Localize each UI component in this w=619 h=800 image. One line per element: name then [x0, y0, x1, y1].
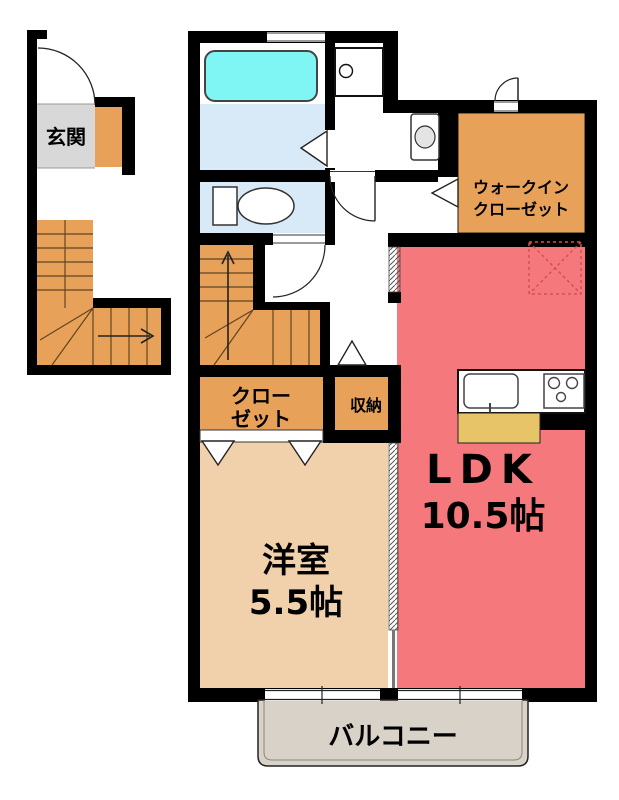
kitchen-sink [464, 374, 518, 408]
western-room-size-label: 5.5帖 [249, 583, 343, 623]
washing-machine [335, 48, 383, 96]
wall-segment [27, 30, 37, 375]
ldk-size-label: 10.5帖 [421, 496, 546, 537]
balcony-label: バルコニー [328, 722, 457, 752]
wall-segment [93, 298, 171, 308]
wall-segment [585, 100, 597, 702]
closet-door-track [200, 430, 323, 442]
toilet-door [273, 234, 325, 297]
western-room-label: 洋室 [262, 541, 330, 581]
walk-in-closet-label-line1: ウォークイン [473, 178, 569, 197]
wall-segment [27, 30, 47, 39]
wall-segment [323, 365, 335, 432]
entrance-step [95, 107, 122, 167]
walk-in-closet-outer-door [494, 78, 518, 112]
room-divider-accordion-door [389, 443, 398, 630]
wall-segment [200, 170, 330, 182]
wall-segment [438, 113, 458, 177]
vanity-sink [411, 114, 439, 160]
wall-segment [388, 365, 401, 443]
storage-label: 収納 [350, 396, 382, 415]
bathroom-wash-floor [200, 104, 325, 170]
ldk-sliding-door [389, 247, 400, 292]
bathroom-window [267, 32, 325, 42]
wall-segment [388, 292, 401, 303]
entrance-label: 玄関 [46, 125, 86, 149]
wall-segment [27, 365, 171, 375]
wall-segment [320, 302, 330, 365]
wall-segment [188, 233, 273, 245]
exterior-stairs [37, 220, 165, 365]
wall-segment [188, 365, 397, 377]
wall-segment [388, 233, 597, 247]
wall-segment [122, 97, 135, 175]
floorplan-svg: 玄関 ウォークイン クローゼット クロー ゼット 収納 洋室 5.5帖 LDK … [0, 0, 619, 800]
wall-segment [253, 245, 265, 302]
kitchen-lower-counter [458, 413, 540, 443]
wall-segment [323, 430, 397, 443]
wall-segment [161, 298, 171, 375]
entrance-door-arc [38, 48, 95, 105]
walk-in-closet-label-line2: クローゼット [473, 200, 569, 219]
closet-label-line2: ゼット [231, 407, 291, 431]
wall-segment [540, 413, 585, 430]
wall-segment [325, 182, 335, 245]
floorplan-canvas: 玄関 ウォークイン クローゼット クロー ゼット 収納 洋室 5.5帖 LDK … [0, 0, 619, 800]
wall-segment [383, 100, 597, 113]
washroom-door [330, 171, 375, 221]
room-divider-panel [392, 630, 395, 688]
ldk-label: LDK [426, 447, 540, 493]
bathtub [205, 51, 317, 101]
wall-segment [253, 302, 330, 310]
closet-label-line1: クロー [231, 384, 291, 408]
toilet [213, 187, 294, 225]
storage-door-marker [338, 341, 366, 365]
wall-segment [375, 170, 438, 182]
walk-in-closet-door-marker [432, 179, 458, 207]
wall-segment [383, 43, 398, 105]
